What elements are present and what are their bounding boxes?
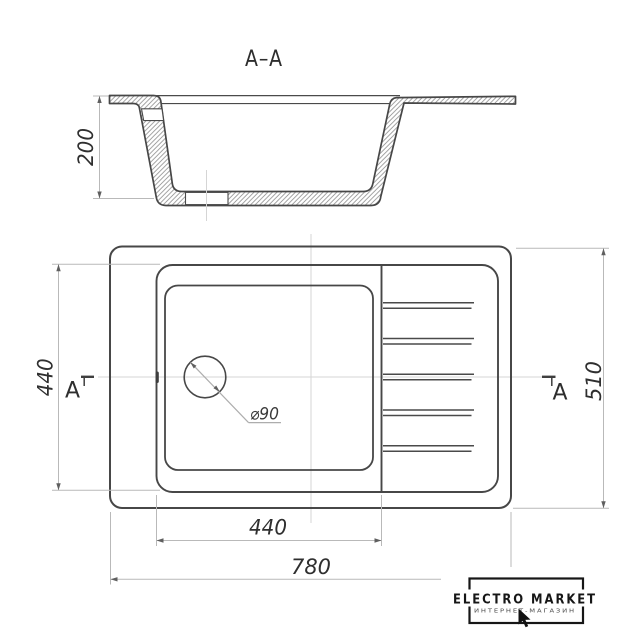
section-marker-left: A bbox=[65, 377, 94, 404]
drain-dimension: ⌀90 bbox=[190, 362, 281, 424]
logo-subtitle: ИНТЕРНЕТ-МАГАЗИН bbox=[474, 609, 576, 615]
bowl-outline bbox=[165, 286, 373, 471]
section-marker-right-label: A bbox=[552, 381, 567, 406]
section-title: A–A bbox=[245, 47, 283, 72]
logo: ELECTRO MARKET ИНТЕРНЕТ-МАГАЗИН bbox=[441, 567, 614, 638]
dim-510-label: 510 bbox=[582, 361, 606, 401]
logo-title: ELECTRO MARKET bbox=[453, 593, 597, 608]
dim-440-left-label: 440 bbox=[34, 358, 58, 396]
dim-depth-label: 200 bbox=[74, 128, 98, 166]
dim-440-bottom-label: 440 bbox=[249, 516, 287, 540]
section-marker-right: A bbox=[542, 377, 568, 406]
drawing-canvas: A–A 200 bbox=[0, 0, 640, 640]
overflow-mark bbox=[156, 372, 159, 384]
section-marker-left-label: A bbox=[65, 379, 80, 404]
dim-780-label: 780 bbox=[291, 555, 331, 579]
sink-technical-drawing: A–A 200 bbox=[0, 0, 640, 640]
section-profile bbox=[110, 96, 516, 206]
dim-510-right: 510 bbox=[513, 248, 609, 508]
plan-view: ⌀90 A A 440 510 bbox=[34, 234, 610, 585]
sink-inner-rim bbox=[157, 265, 499, 492]
section-view: A–A 200 bbox=[74, 47, 516, 221]
wall-joint-notch bbox=[142, 109, 164, 121]
drain-label: ⌀90 bbox=[250, 405, 279, 425]
dim-440-bottom: 440 bbox=[157, 495, 382, 546]
